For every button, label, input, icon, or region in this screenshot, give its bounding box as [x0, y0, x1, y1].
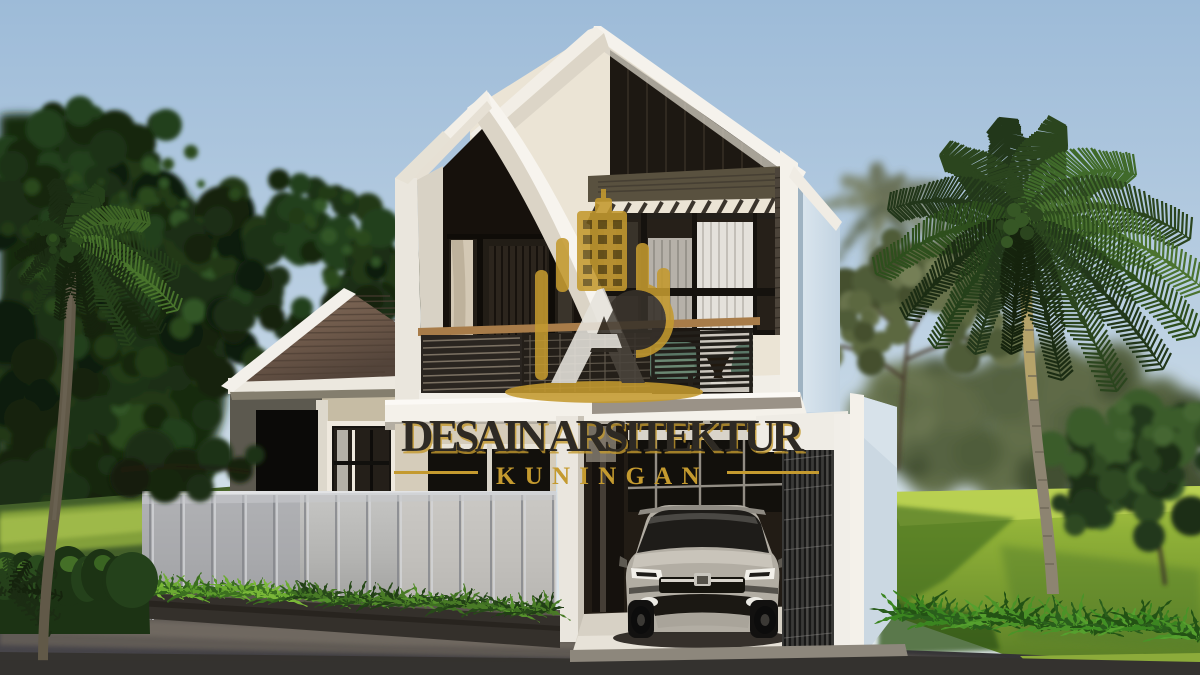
svg-text:KUNINGAN: KUNINGAN	[496, 463, 712, 490]
svg-text:DESAIN ARSITEKTUR: DESAIN ARSITEKTUR	[401, 411, 805, 461]
